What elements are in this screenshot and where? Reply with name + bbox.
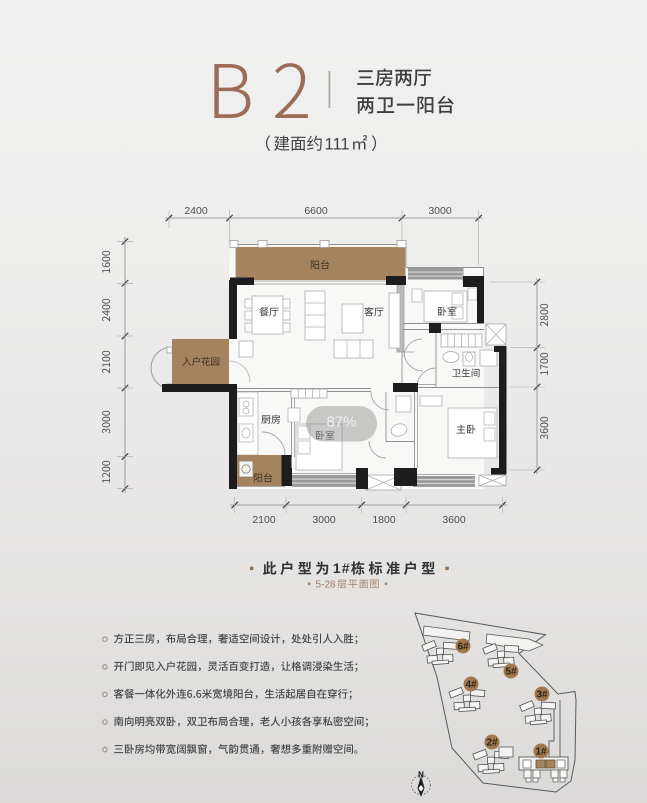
svg-text:111: 111 xyxy=(325,136,350,154)
svg-text:87%: 87% xyxy=(326,414,356,431)
svg-text:1800: 1800 xyxy=(372,514,396,526)
svg-text:1#: 1# xyxy=(333,560,351,576)
svg-text:1#: 1# xyxy=(535,747,547,758)
svg-text:2100: 2100 xyxy=(252,514,276,526)
svg-text:2#: 2# xyxy=(486,738,498,749)
svg-text:5#: 5# xyxy=(505,667,517,678)
svg-text:3600: 3600 xyxy=(442,514,466,526)
svg-text:4#: 4# xyxy=(465,680,477,691)
svg-text:5-28: 5-28 xyxy=(316,580,336,591)
svg-text:3000: 3000 xyxy=(312,514,336,526)
svg-text:6600: 6600 xyxy=(304,205,328,217)
svg-text:3000: 3000 xyxy=(428,205,452,217)
svg-text:2400: 2400 xyxy=(184,205,208,217)
svg-text:3#: 3# xyxy=(536,690,548,701)
svg-text:6#: 6# xyxy=(457,642,469,653)
